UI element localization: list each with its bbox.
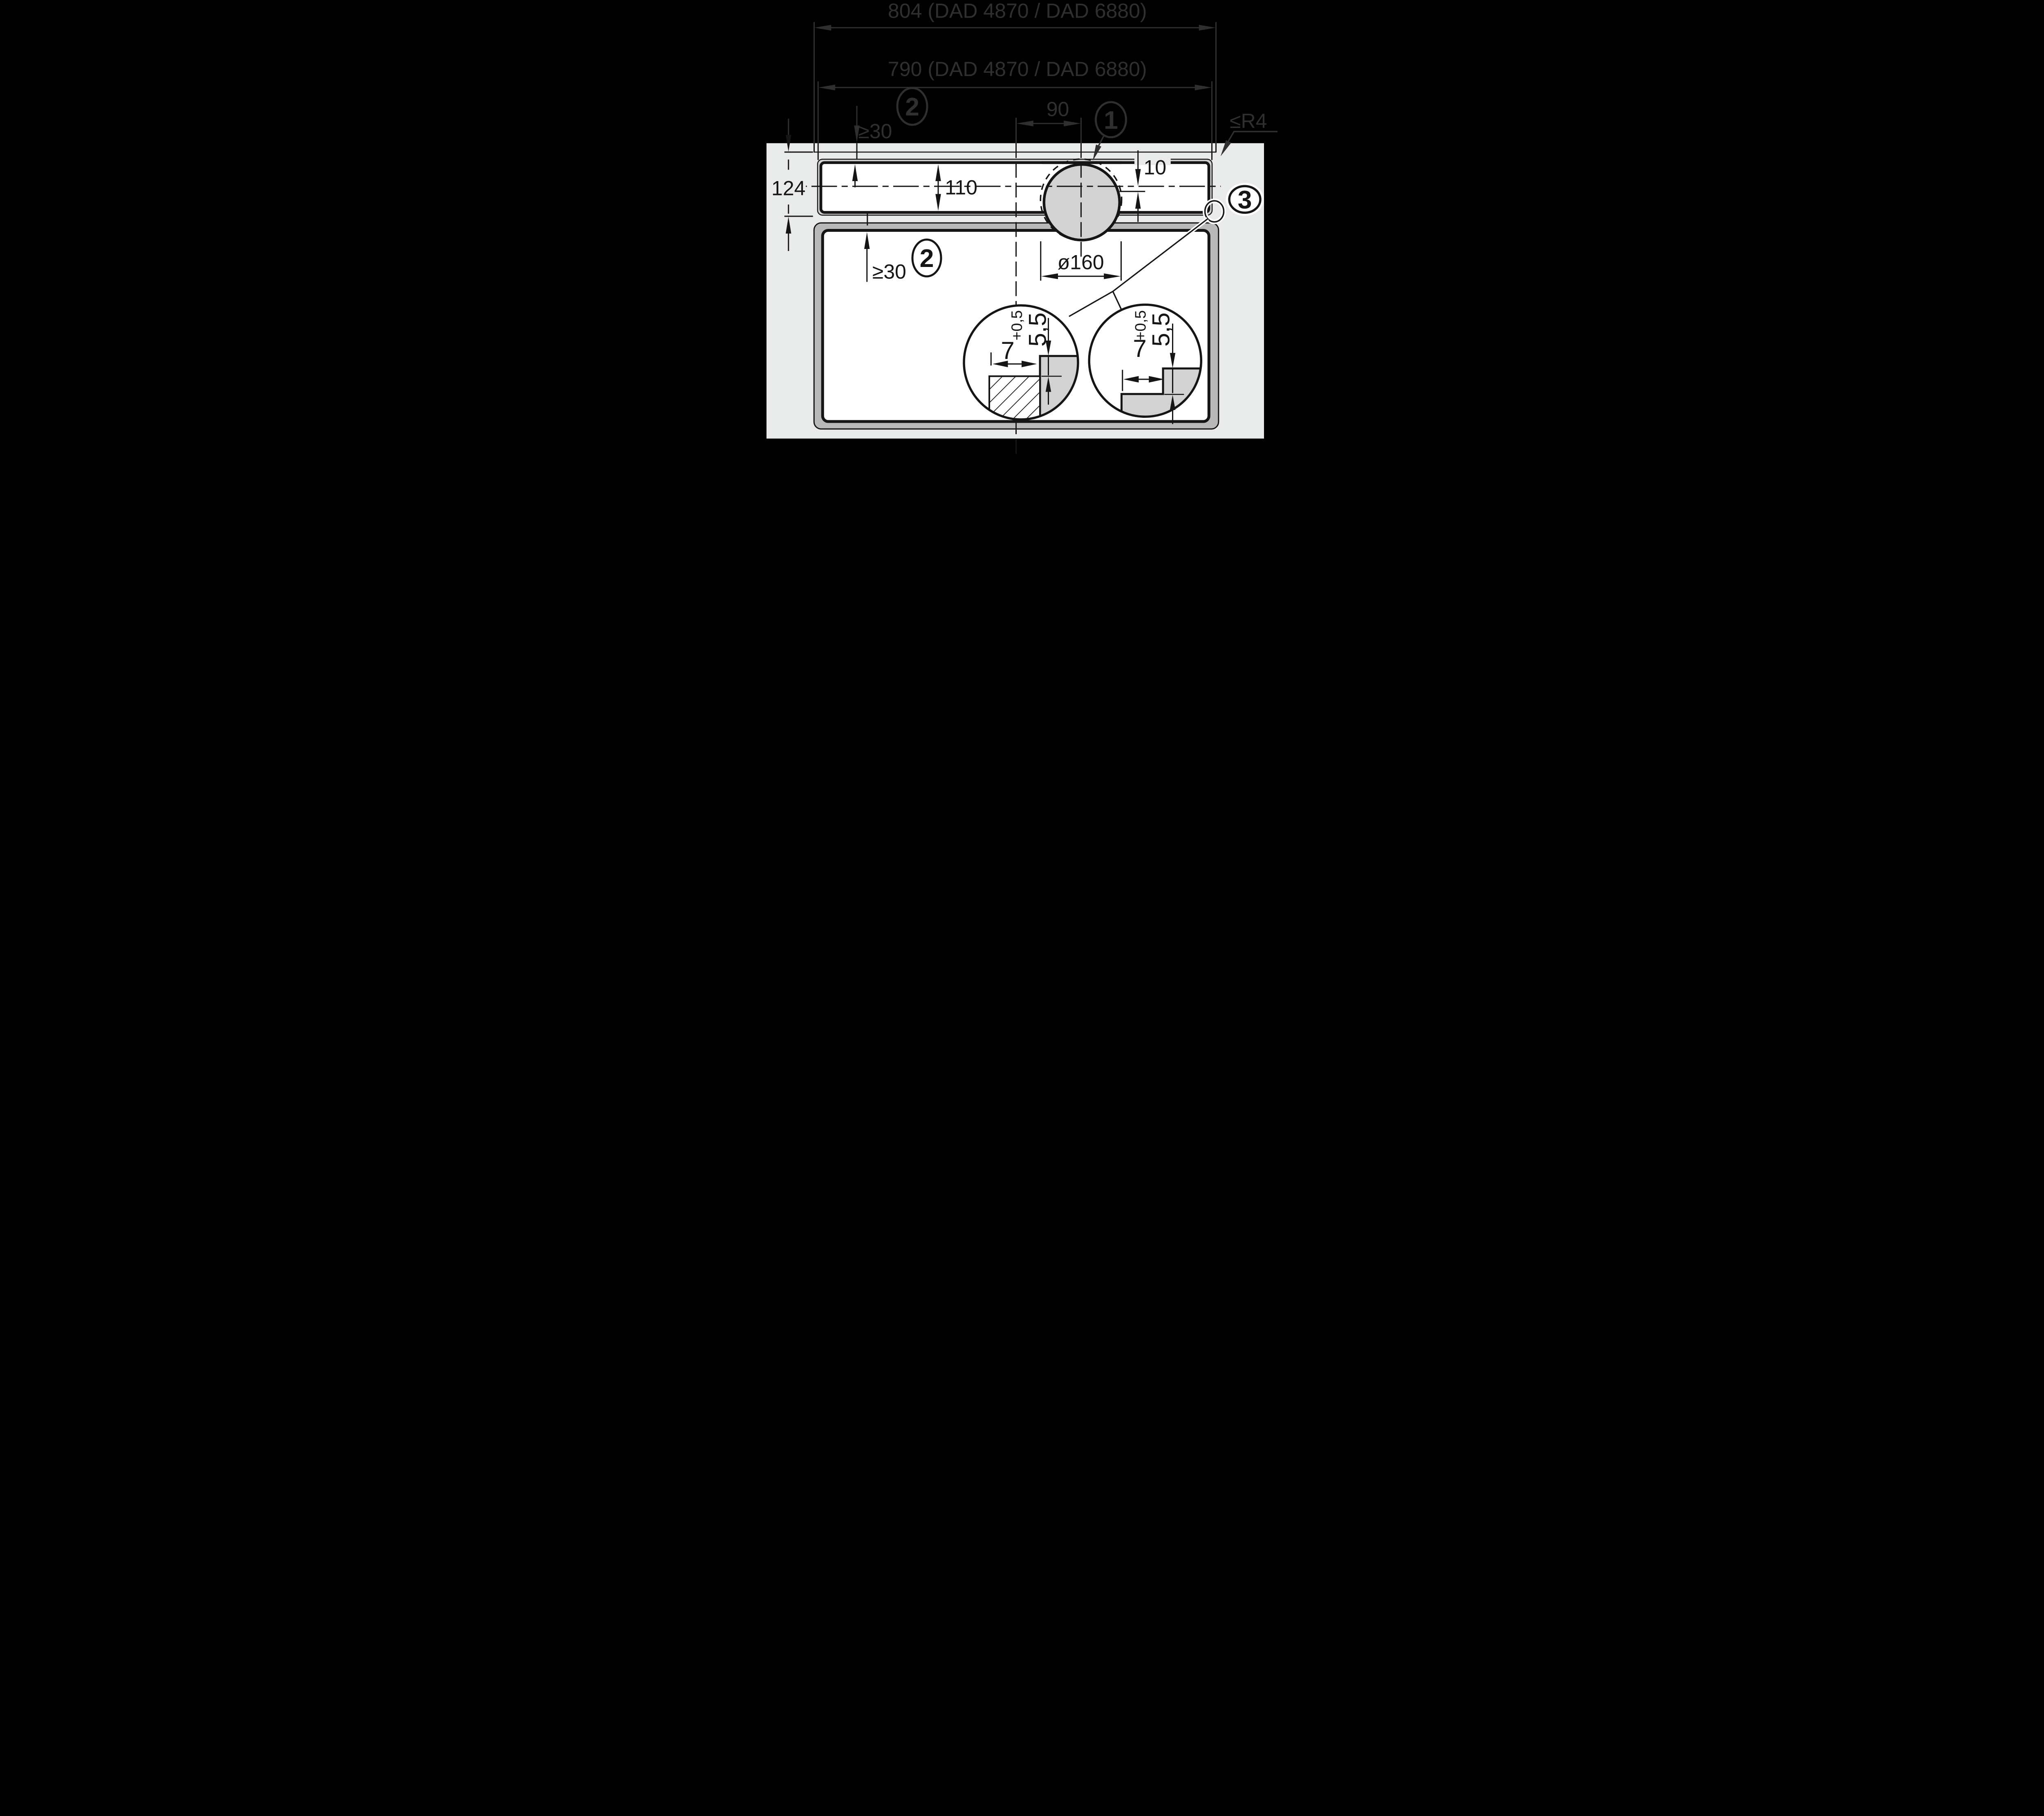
dim-duct-offset-label: 90 xyxy=(1047,98,1069,121)
detail-left-tolerance-label: +0,5 xyxy=(1008,310,1025,341)
dim-bottom-clearance-label: ≥30 xyxy=(872,260,906,283)
dim-glass-depth-label: 124 xyxy=(771,177,805,200)
dim-cutout-depth-label: 110 xyxy=(945,176,977,199)
callout-3: 3 xyxy=(1238,186,1252,214)
dim-cutout-width-label: 790 (DAD 4870 / DAD 6880) xyxy=(888,58,1147,81)
dim-front-offset-label: 10 xyxy=(1144,156,1167,179)
installation-diagram: 804 (DAD 4870 / DAD 6880) 790 (DAD 4870 … xyxy=(766,0,1277,454)
detail-right-tolerance-label: +0,5 xyxy=(1132,310,1149,341)
diagram-stage: 804 (DAD 4870 / DAD 6880) 790 (DAD 4870 … xyxy=(766,0,1277,454)
dim-corner-radius-label: ≤R4 xyxy=(1230,110,1267,132)
detail-right-depth-label: 5,5 xyxy=(1148,312,1175,346)
detail-left-width-label: 7 xyxy=(1001,337,1014,364)
callout-2-top: 2 xyxy=(905,92,919,121)
callout-2-bottom: 2 xyxy=(920,244,934,273)
dim-duct-diameter-label: ø160 xyxy=(1058,251,1104,274)
dim-rear-clearance-label: ≥30 xyxy=(858,120,892,143)
callout-1: 1 xyxy=(1104,106,1118,135)
duct-spigot xyxy=(1044,164,1120,240)
dim-appliance-width-label: 804 (DAD 4870 / DAD 6880) xyxy=(888,0,1147,22)
